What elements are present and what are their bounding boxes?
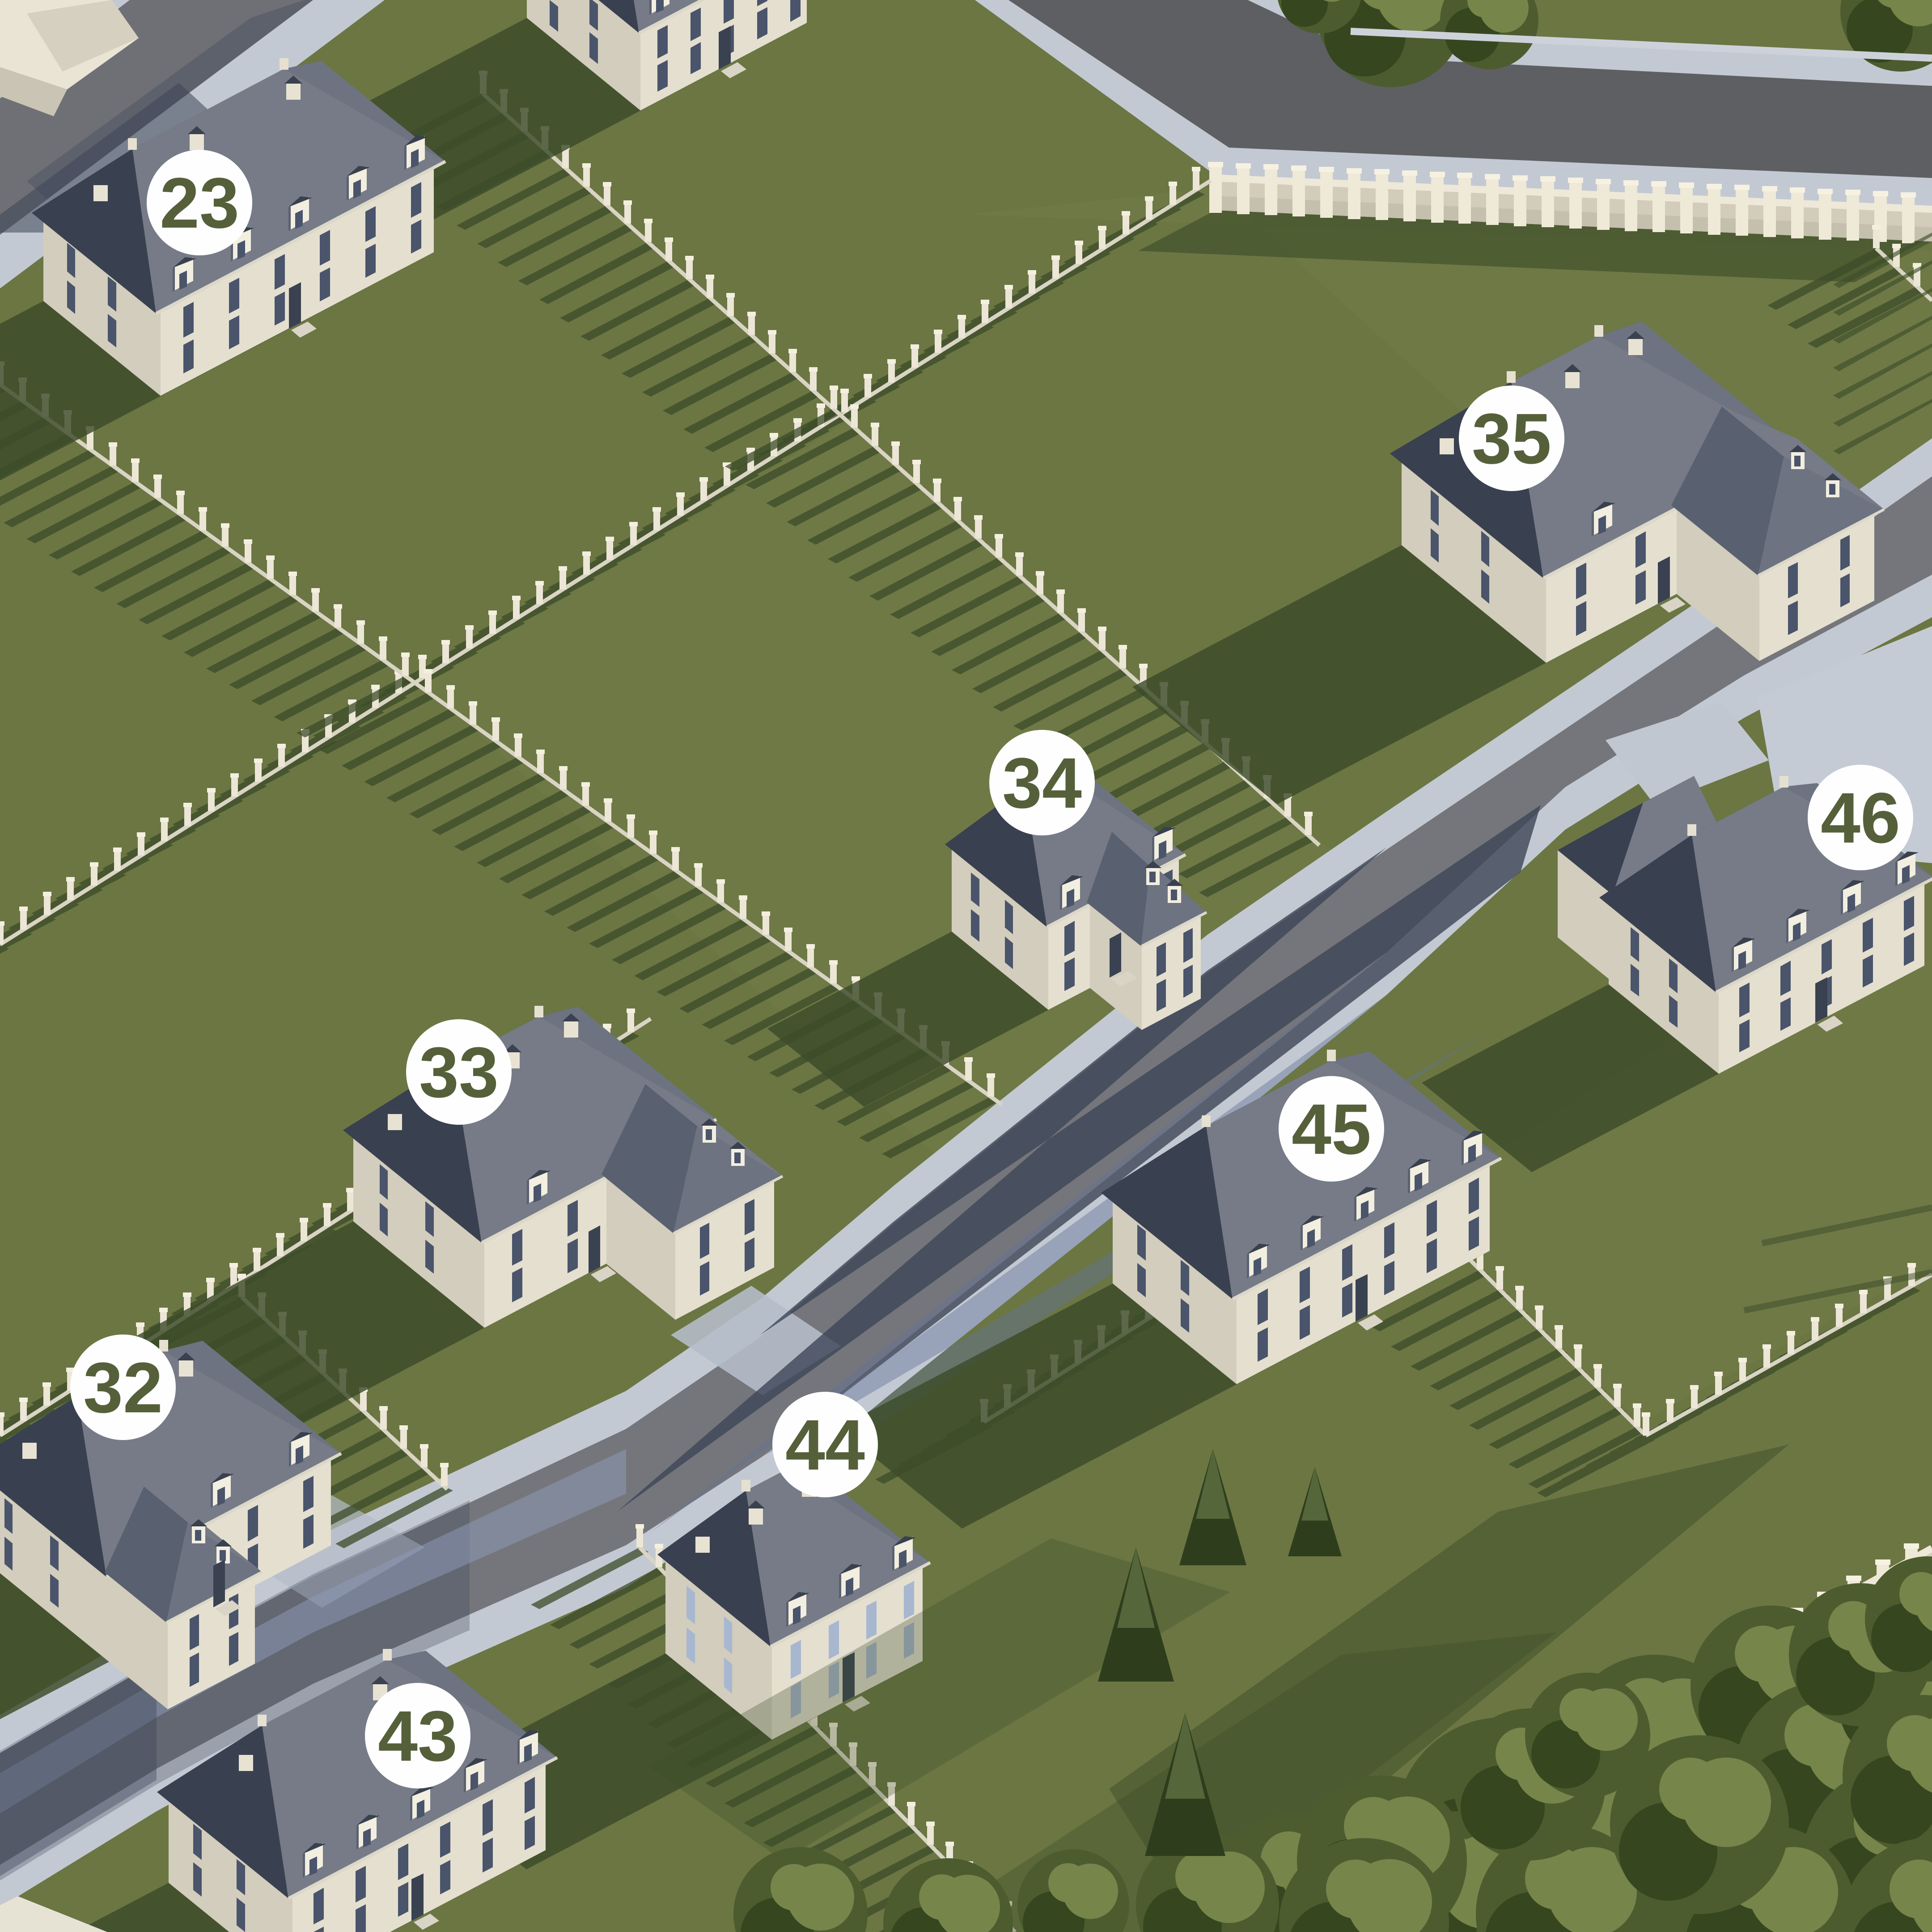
svg-text:33: 33 xyxy=(419,1032,499,1112)
svg-text:23: 23 xyxy=(160,163,239,243)
svg-text:34: 34 xyxy=(1002,743,1082,823)
svg-text:45: 45 xyxy=(1292,1089,1371,1169)
svg-text:35: 35 xyxy=(1472,398,1551,479)
svg-text:44: 44 xyxy=(785,1405,865,1485)
svg-text:46: 46 xyxy=(1821,778,1900,858)
svg-text:32: 32 xyxy=(83,1347,163,1428)
svg-text:43: 43 xyxy=(378,1696,458,1776)
